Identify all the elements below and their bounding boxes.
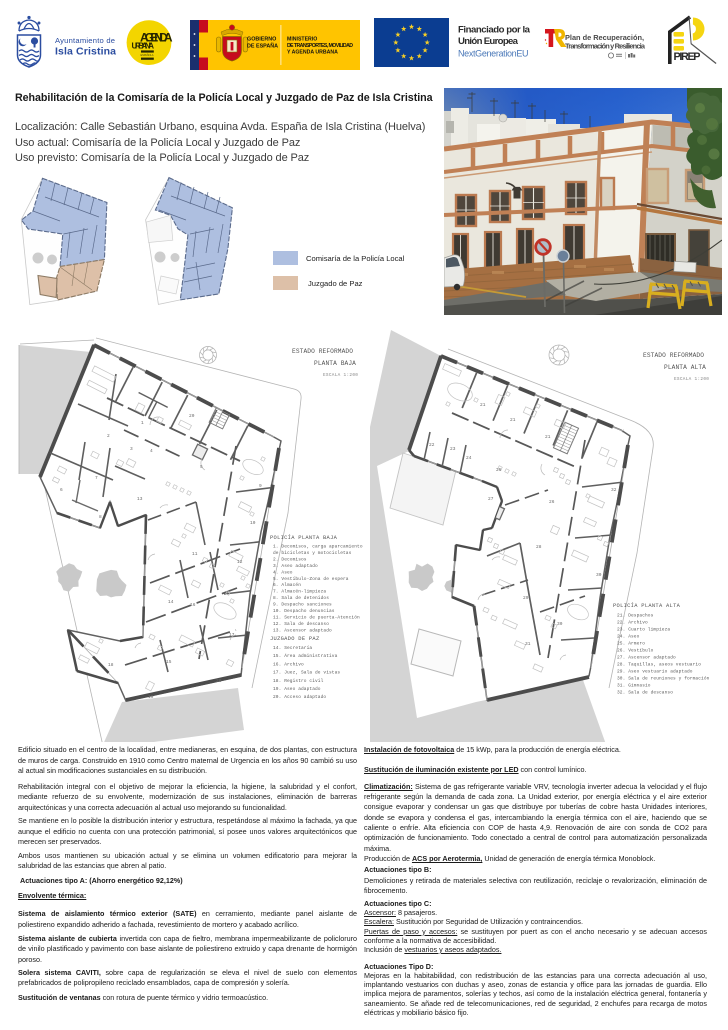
- svg-text:22: 22: [429, 442, 435, 448]
- svg-text:POLICÍA PLANTA BAJA: POLICÍA PLANTA BAJA: [270, 534, 338, 541]
- svg-text:PLANTA BAJA: PLANTA BAJA: [314, 360, 356, 367]
- svg-text:26. Vestíbulo: 26. Vestíbulo: [617, 648, 654, 654]
- svg-text:31. Gimnasio: 31. Gimnasio: [617, 683, 651, 689]
- svg-text:7: 7: [95, 475, 98, 481]
- svg-text:25. Armero: 25. Armero: [617, 641, 645, 647]
- svg-text:18: 18: [108, 662, 114, 668]
- svg-text:21: 21: [510, 417, 516, 423]
- svg-text:28: 28: [536, 544, 542, 550]
- svg-text:18. Registro civil: 18. Registro civil: [273, 678, 324, 684]
- svg-text:Unión Europea: Unión Europea: [458, 36, 519, 47]
- svg-text:4: 4: [150, 448, 153, 454]
- svg-text:29: 29: [523, 595, 529, 601]
- svg-text:29. Aseo vestuario adaptado: 29. Aseo vestuario adaptado: [617, 669, 693, 675]
- svg-text:ESCALA 1:200: ESCALA 1:200: [674, 377, 709, 382]
- svg-text:20: 20: [216, 678, 222, 684]
- svg-text:27. Ascensor adaptado: 27. Ascensor adaptado: [617, 655, 676, 661]
- svg-text:27: 27: [488, 496, 494, 502]
- svg-text:14: 14: [168, 599, 174, 605]
- svg-text:11. Servicio de puerta-Atenció: 11. Servicio de puerta-Atención: [273, 614, 360, 620]
- svg-text:Y AGENDA URBANA: Y AGENDA URBANA: [287, 50, 338, 56]
- svg-text:8. Sala de detenidos: 8. Sala de detenidos: [273, 595, 329, 601]
- svg-text:16. Archivo: 16. Archivo: [273, 661, 304, 667]
- svg-text:POLICÍA PLANTA ALTA: POLICÍA PLANTA ALTA: [613, 602, 681, 609]
- svg-text:URBANA: URBANA: [132, 42, 155, 51]
- svg-text:2. Decomisos: 2. Decomisos: [273, 556, 307, 562]
- svg-text:13: 13: [137, 496, 143, 502]
- svg-text:17. Juez, Sala de vistas: 17. Juez, Sala de vistas: [273, 670, 340, 676]
- svg-text:25: 25: [496, 467, 502, 473]
- svg-text:30: 30: [557, 621, 563, 627]
- svg-text:1. Decomisos, carga aparcamie: 1. Decomisos, carga aparcamiento: [273, 544, 363, 550]
- svg-text:19. Aseo adaptado: 19. Aseo adaptado: [273, 686, 321, 692]
- svg-text:30. Sala de reuniones y formac: 30. Sala de reuniones y formación: [617, 676, 710, 682]
- svg-text:de bicicletas y motocicletas: de bicicletas y motocicletas: [273, 550, 352, 556]
- svg-text:16: 16: [190, 602, 196, 608]
- svg-text:21: 21: [545, 434, 551, 440]
- svg-text:32: 32: [611, 487, 617, 493]
- svg-text:13. Ascensor adaptado: 13. Ascensor adaptado: [273, 627, 332, 633]
- svg-text:20. Acceso adaptado: 20. Acceso adaptado: [273, 694, 326, 700]
- svg-text:Financiado por la: Financiado por la: [458, 25, 531, 36]
- svg-text:ESTADO REFORMADO: ESTADO REFORMADO: [292, 348, 353, 355]
- svg-text:Isla Cristina: Isla Cristina: [55, 46, 116, 58]
- svg-text:8: 8: [99, 514, 102, 520]
- svg-text:1: 1: [141, 420, 144, 426]
- svg-text:ESCALA 1:200: ESCALA 1:200: [323, 373, 358, 378]
- svg-text:19: 19: [148, 694, 154, 700]
- svg-text:9: 9: [259, 483, 262, 489]
- svg-text:2: 2: [107, 433, 110, 439]
- svg-text:11: 11: [192, 551, 198, 557]
- svg-text:21: 21: [480, 402, 486, 408]
- svg-text:PIREP: PIREP: [674, 51, 701, 63]
- svg-text:9. Despacho sanciones: 9. Despacho sanciones: [273, 602, 332, 608]
- svg-text:21. Despachos: 21. Despachos: [617, 613, 654, 619]
- svg-text:3. Aseo adaptado: 3. Aseo adaptado: [273, 563, 318, 569]
- svg-text:MINISTERIO: MINISTERIO: [287, 37, 317, 43]
- svg-text:24. Aseo: 24. Aseo: [617, 634, 640, 640]
- svg-text:20: 20: [189, 413, 195, 419]
- svg-text:5. Vestíbulo-Zona de espera: 5. Vestíbulo-Zona de espera: [273, 576, 349, 582]
- svg-text:10. Despacho denuncias: 10. Despacho denuncias: [273, 608, 335, 614]
- svg-text:DE TRANSPORTES, MOVILIDAD: DE TRANSPORTES, MOVILIDAD: [287, 43, 353, 49]
- svg-text:Ayuntamiento de: Ayuntamiento de: [55, 36, 115, 45]
- svg-text:22. Archivo: 22. Archivo: [617, 620, 648, 626]
- svg-text:23. Cuarto limpieza: 23. Cuarto limpieza: [617, 627, 670, 633]
- svg-text:12. Sala de descanso: 12. Sala de descanso: [273, 621, 329, 627]
- svg-text:NextGenerationEU: NextGenerationEU: [458, 49, 529, 59]
- svg-text:24: 24: [466, 455, 472, 461]
- svg-text:31: 31: [525, 641, 531, 647]
- svg-text:DE ESPAÑA: DE ESPAÑA: [247, 43, 278, 50]
- svg-text:28. Taquillas, aseos vestuario: 28. Taquillas, aseos vestuario: [617, 662, 701, 668]
- svg-text:JUZGADO DE PAZ: JUZGADO DE PAZ: [270, 636, 320, 642]
- svg-text:ESTADO REFORMADO: ESTADO REFORMADO: [643, 352, 704, 359]
- svg-text:PLANTA ALTA: PLANTA ALTA: [664, 364, 706, 371]
- svg-text:7. Almacén-limpieza: 7. Almacén-limpieza: [273, 589, 326, 595]
- svg-text:6. Almacén: 6. Almacén: [273, 582, 301, 588]
- svg-text:32. Sala de descanso: 32. Sala de descanso: [617, 690, 673, 696]
- svg-text:14. Secretaría: 14. Secretaría: [273, 645, 312, 651]
- svg-text:Transformación y Resiliencia: Transformación y Resiliencia: [565, 42, 646, 51]
- svg-text:4. Aseo: 4. Aseo: [273, 569, 293, 575]
- svg-text:6: 6: [60, 487, 63, 493]
- svg-text:5: 5: [200, 464, 203, 470]
- svg-text:GOBIERNO: GOBIERNO: [247, 37, 276, 43]
- svg-text:30: 30: [596, 572, 602, 578]
- svg-text:15: 15: [166, 659, 172, 665]
- svg-text:3: 3: [130, 446, 133, 452]
- svg-text:10: 10: [250, 520, 256, 526]
- svg-text:15. Área administrativa: 15. Área administrativa: [273, 652, 338, 659]
- svg-text:26: 26: [549, 499, 555, 505]
- svg-text:23: 23: [450, 446, 456, 452]
- svg-text:17: 17: [229, 632, 235, 638]
- svg-text:12: 12: [237, 559, 243, 565]
